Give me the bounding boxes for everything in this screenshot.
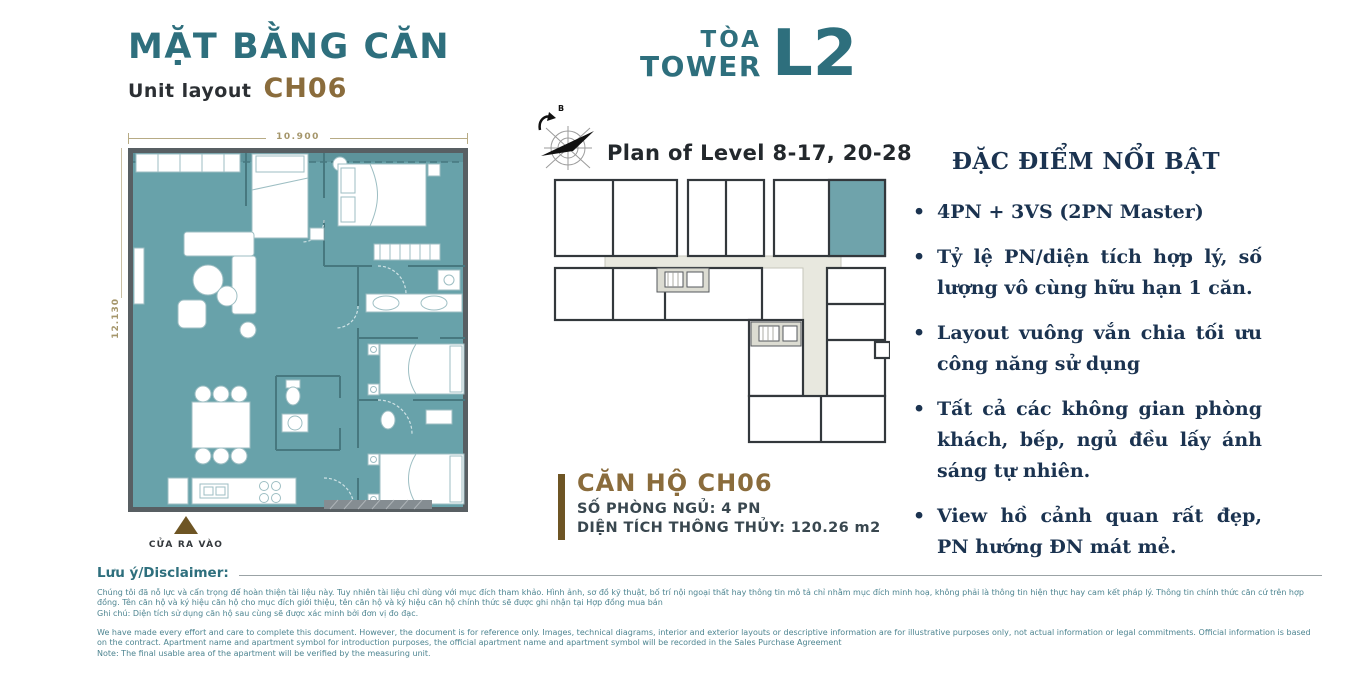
feature-item: Tỷ lệ PN/diện tích hợp lý, số lượng vô c… [910, 242, 1262, 304]
entrance-label: CỬA RA VÀO [130, 540, 242, 550]
disclaimer-vi-note: Ghi chú: Diện tích sử dụng căn hộ sau cù… [97, 609, 1322, 619]
disclaimer-en: We have made every effort and care to co… [97, 628, 1322, 648]
page-title: MẶT BẰNG CĂN [128, 28, 450, 67]
feature-text: Tất cả các không gian phòng khách, bếp, … [937, 398, 1262, 482]
disclaimer-section: Lưu ý/Disclaimer: Chúng tôi đã nỗ lực và… [97, 565, 1322, 659]
tower-code: L2 [772, 26, 857, 84]
tower-logo: TÒA TOWER L2 [640, 26, 857, 84]
feature-item: Tất cả các không gian phòng khách, bếp, … [910, 394, 1262, 487]
feature-item: Layout vuông vắn chia tối ưu công năng s… [910, 318, 1262, 380]
dimension-left-value: 12.130 [111, 298, 121, 339]
key-plan-title: Plan of Level 8-17, 20-28 [607, 141, 912, 165]
dimension-top-value: 10.900 [128, 132, 468, 142]
disclaimer-vi: Chúng tôi đã nỗ lực và cẩn trọng để hoàn… [97, 588, 1322, 608]
feature-text: 4PN + 3VS (2PN Master) [937, 201, 1204, 223]
unit-area: DIỆN TÍCH THÔNG THỦY: 120.26 m2 [577, 520, 881, 536]
page-subtitle: Unit layout [128, 80, 251, 102]
features-panel: ĐẶC ĐIỂM NỔI BẬT 4PN + 3VS (2PN Master) … [910, 148, 1262, 577]
feature-text: View hồ cảnh quan rất đẹp, PN hướng ĐN m… [937, 505, 1262, 558]
dimension-left: 12.130 [113, 148, 127, 512]
compass-icon: B [528, 106, 598, 182]
feature-item: 4PN + 3VS (2PN Master) [910, 197, 1262, 228]
unit-bedrooms: SỐ PHÒNG NGỦ: 4 PN [577, 501, 881, 517]
disclaimer-en-note: Note: The final usable area of the apart… [97, 649, 1322, 659]
tower-word-en: TOWER [640, 52, 762, 81]
unit-info-block: CĂN HỘ CH06 SỐ PHÒNG NGỦ: 4 PN DIỆN TÍCH… [558, 470, 881, 540]
feature-text: Tỷ lệ PN/diện tích hợp lý, số lượng vô c… [937, 246, 1262, 299]
disclaimer-heading: Lưu ý/Disclaimer: [97, 565, 229, 581]
unit-code: CH06 [263, 73, 347, 104]
disclaimer-rule [239, 575, 1322, 576]
unit-info-accent-bar [558, 474, 565, 540]
key-plan-drawing [545, 174, 890, 452]
brochure-page: MẶT BẰNG CĂN Unit layout CH06 TÒA TOWER … [0, 0, 1350, 675]
feature-item: View hồ cảnh quan rất đẹp, PN hướng ĐN m… [910, 501, 1262, 563]
entrance-marker: CỬA RA VÀO [130, 516, 242, 550]
features-list: 4PN + 3VS (2PN Master) Tỷ lệ PN/diện tíc… [910, 197, 1262, 563]
tower-word-vi: TÒA [701, 29, 762, 52]
features-heading: ĐẶC ĐIỂM NỔI BẬT [910, 148, 1262, 175]
entrance-arrow-icon [174, 516, 198, 534]
compass-north-label: B [558, 104, 564, 113]
dimension-top: 10.900 [128, 130, 468, 146]
unit-name: CĂN HỘ CH06 [577, 470, 881, 498]
title-block: MẶT BẰNG CĂN Unit layout CH06 [128, 28, 450, 104]
feature-text: Layout vuông vắn chia tối ưu công năng s… [937, 322, 1262, 375]
unit-floor-plan-drawing [128, 148, 468, 512]
